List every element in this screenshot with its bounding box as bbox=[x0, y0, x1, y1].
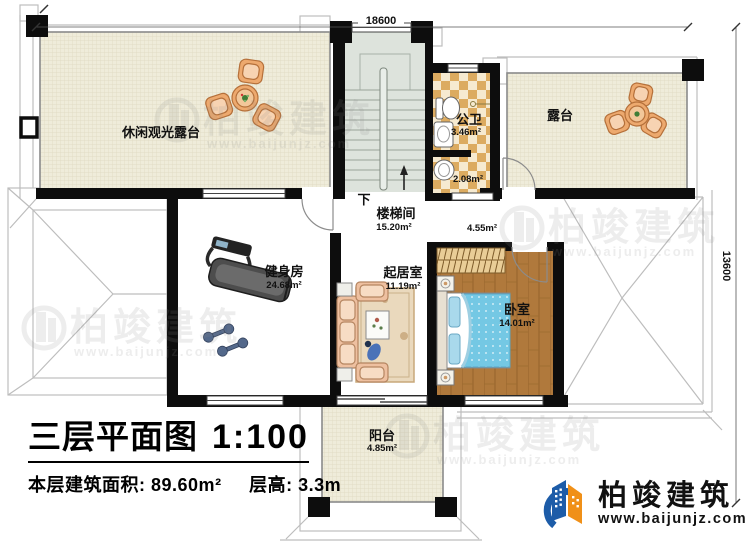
plan-title-line: 三层平面图1:100 bbox=[28, 410, 309, 463]
floor-area-value: 89.60m² bbox=[151, 475, 222, 495]
label-bedroom: 卧室 bbox=[504, 302, 530, 317]
watermark-url: www.baijunjz.com bbox=[551, 244, 696, 259]
bedroom-furniture bbox=[437, 248, 510, 385]
label-living-room: 起居室 bbox=[382, 265, 422, 280]
coffee-table bbox=[366, 311, 389, 339]
sofa-set bbox=[337, 282, 414, 382]
label-terrace: 露台 bbox=[547, 108, 573, 123]
logo-icon bbox=[538, 472, 590, 536]
label-leisure-terrace: 休闲观光露台 bbox=[121, 125, 200, 140]
logo-website: www.baijunjz.com bbox=[598, 511, 747, 527]
watermark-url: www.baijunjz.com bbox=[73, 344, 218, 359]
watermark-url: www.baijunjz.com bbox=[436, 452, 581, 467]
label-stairwell-area: 15.20m² bbox=[376, 222, 411, 233]
plan-title: 三层平面图 bbox=[28, 418, 198, 455]
label-balcony-area: 4.85m² bbox=[367, 443, 397, 454]
side-table bbox=[337, 283, 352, 296]
toilet-tank bbox=[436, 98, 443, 119]
sliding-door-balcony bbox=[337, 396, 427, 405]
label-gym: 健身房 bbox=[264, 264, 303, 279]
floor-plan-page: 柏竣建筑 www.baijunjz.com 柏竣建筑 www.baijunjz.… bbox=[0, 0, 750, 546]
window-bedroom-bottom bbox=[465, 396, 543, 405]
dim-top: 18600 bbox=[366, 15, 397, 27]
label-stair-down: 下 bbox=[357, 192, 370, 207]
watermark-text: 柏竣建筑 bbox=[70, 307, 242, 349]
watermark-text: 柏竣建筑 bbox=[203, 99, 375, 141]
plan-scale: 1:100 bbox=[212, 418, 309, 456]
door-bathroom bbox=[452, 193, 493, 200]
label-bedroom-area: 14.01m² bbox=[499, 318, 534, 329]
label-bathroom-lobby-area: 2.08m² bbox=[453, 174, 483, 185]
title-block: 三层平面图1:100 本层建筑面积: 89.60m² 层高: 3.3m bbox=[28, 410, 341, 497]
window-gym-bottom bbox=[207, 396, 283, 405]
floor-area-label: 本层建筑面积: bbox=[28, 475, 146, 495]
company-logo: 柏竣建筑 www.baijunjz.com bbox=[538, 472, 747, 536]
floor-height-label: 层高: bbox=[249, 475, 293, 495]
label-gym-area: 24.68m² bbox=[266, 280, 301, 291]
logo-text: 柏竣建筑 www.baijunjz.com bbox=[598, 481, 747, 527]
plan-area-line: 本层建筑面积: 89.60m² 层高: 3.3m bbox=[28, 471, 341, 497]
window-gym-terrace bbox=[203, 189, 285, 198]
watermark-url: www.baijunjz.com bbox=[206, 136, 351, 151]
dim-right: 13600 bbox=[720, 251, 732, 282]
label-bathroom: 公卫 bbox=[456, 112, 482, 127]
label-bathroom-area: 3.46m² bbox=[451, 127, 481, 138]
logo-company-name: 柏竣建筑 bbox=[598, 481, 747, 511]
watermark-text: 柏竣建筑 bbox=[433, 415, 605, 457]
floor-height-value: 3.3m bbox=[298, 475, 341, 495]
label-stairwell: 楼梯间 bbox=[376, 206, 415, 221]
gym-door bbox=[302, 199, 333, 230]
label-balcony: 阳台 bbox=[369, 428, 395, 443]
window-bathroom-top bbox=[448, 64, 478, 72]
bed bbox=[437, 291, 510, 370]
hollow-column bbox=[21, 118, 37, 137]
label-living-room-area: 11.19m² bbox=[386, 281, 421, 292]
label-hall-area: 4.55m² bbox=[467, 223, 497, 234]
side-table bbox=[337, 368, 352, 381]
watermark-text: 柏竣建筑 bbox=[548, 207, 720, 249]
